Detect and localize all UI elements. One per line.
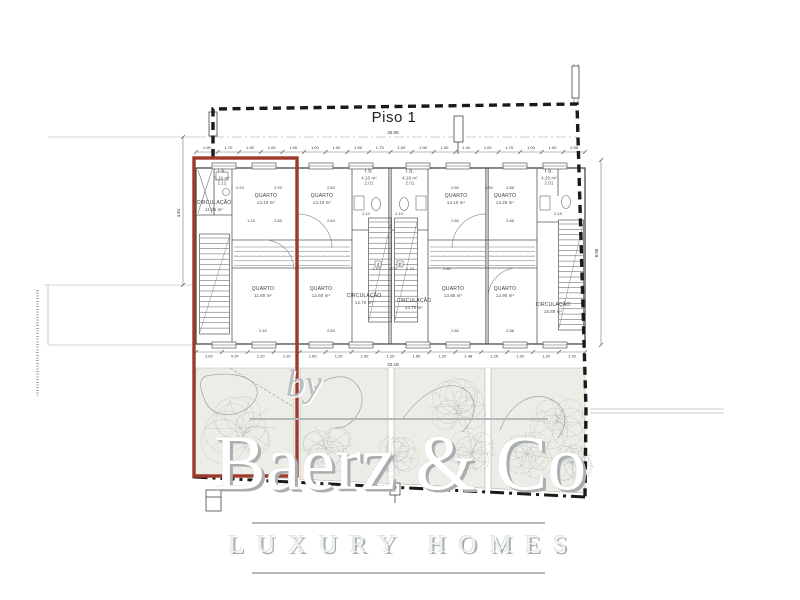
svg-text:1.20: 1.20 xyxy=(335,354,344,359)
svg-text:1.00: 1.00 xyxy=(441,145,450,150)
svg-text:1.70: 1.70 xyxy=(505,145,514,150)
floor-plan-drawing: 1.001.701.001.001.001.001.001.001.731.00… xyxy=(0,0,800,600)
svg-text:1.92: 1.92 xyxy=(361,354,370,359)
svg-text:1.73: 1.73 xyxy=(376,145,385,150)
svg-text:1.00: 1.00 xyxy=(354,145,363,150)
svg-text:2.80: 2.80 xyxy=(443,266,452,271)
svg-text:1.00: 1.00 xyxy=(527,145,536,150)
svg-text:1.60: 1.60 xyxy=(309,354,318,359)
svg-text:1.20: 1.20 xyxy=(387,354,396,359)
svg-text:0.97: 0.97 xyxy=(231,354,240,359)
svg-text:2.84: 2.84 xyxy=(327,328,336,333)
svg-text:1.00: 1.00 xyxy=(549,145,558,150)
svg-text:E: E xyxy=(398,262,401,267)
svg-text:0.96: 0.96 xyxy=(570,145,579,150)
svg-text:2.80: 2.80 xyxy=(451,328,460,333)
svg-text:22.18: 22.18 xyxy=(387,362,399,367)
svg-text:1.00: 1.00 xyxy=(268,145,277,150)
svg-text:2.86: 2.86 xyxy=(506,218,515,223)
svg-text:2.86: 2.86 xyxy=(506,328,515,333)
svg-text:1.00: 1.00 xyxy=(311,145,320,150)
svg-text:25.08: 25.08 xyxy=(387,130,399,135)
svg-text:1.10: 1.10 xyxy=(406,266,415,271)
svg-text:2.86: 2.86 xyxy=(506,185,515,190)
svg-text:2.84: 2.84 xyxy=(327,218,336,223)
svg-text:2.10: 2.10 xyxy=(362,211,371,216)
svg-text:1.00: 1.00 xyxy=(246,145,255,150)
svg-text:1.00: 1.00 xyxy=(397,145,406,150)
svg-text:1.00: 1.00 xyxy=(389,266,398,271)
svg-text:2.62: 2.62 xyxy=(205,354,214,359)
svg-text:1.20: 1.20 xyxy=(283,354,292,359)
svg-text:1.20: 1.20 xyxy=(257,354,266,359)
svg-text:0.30: 0.30 xyxy=(485,185,494,190)
svg-text:1.48: 1.48 xyxy=(464,354,473,359)
svg-text:1.20: 1.20 xyxy=(542,354,551,359)
svg-text:1.20: 1.20 xyxy=(490,354,499,359)
svg-text:1.00: 1.00 xyxy=(289,145,298,150)
svg-text:0.24: 0.24 xyxy=(236,185,245,190)
svg-text:2.40: 2.40 xyxy=(259,328,268,333)
svg-text:2.10: 2.10 xyxy=(395,211,404,216)
svg-text:2.19: 2.19 xyxy=(554,211,563,216)
svg-text:1.20: 1.20 xyxy=(568,354,577,359)
svg-text:1.92: 1.92 xyxy=(516,354,525,359)
floor-plan-page: 1.001.701.001.001.001.001.001.001.731.00… xyxy=(0,0,800,600)
svg-text:2.80: 2.80 xyxy=(451,185,460,190)
svg-text:1.00: 1.00 xyxy=(484,145,493,150)
svg-text:2.83: 2.83 xyxy=(274,218,283,223)
svg-text:1.00: 1.00 xyxy=(419,145,428,150)
svg-text:1.15: 1.15 xyxy=(247,218,256,223)
svg-text:1.20: 1.20 xyxy=(438,354,447,359)
svg-text:2.84: 2.84 xyxy=(327,185,336,190)
svg-text:1.00: 1.00 xyxy=(203,145,212,150)
svg-text:8.05: 8.05 xyxy=(594,248,599,257)
svg-text:2.93: 2.93 xyxy=(274,185,283,190)
svg-text:2.80: 2.80 xyxy=(451,218,460,223)
svg-text:1.70: 1.70 xyxy=(225,145,234,150)
svg-text:4.81: 4.81 xyxy=(176,208,181,217)
svg-text:1.60: 1.60 xyxy=(413,354,422,359)
svg-text:1.00: 1.00 xyxy=(333,145,342,150)
svg-text:1.44: 1.44 xyxy=(462,145,471,150)
